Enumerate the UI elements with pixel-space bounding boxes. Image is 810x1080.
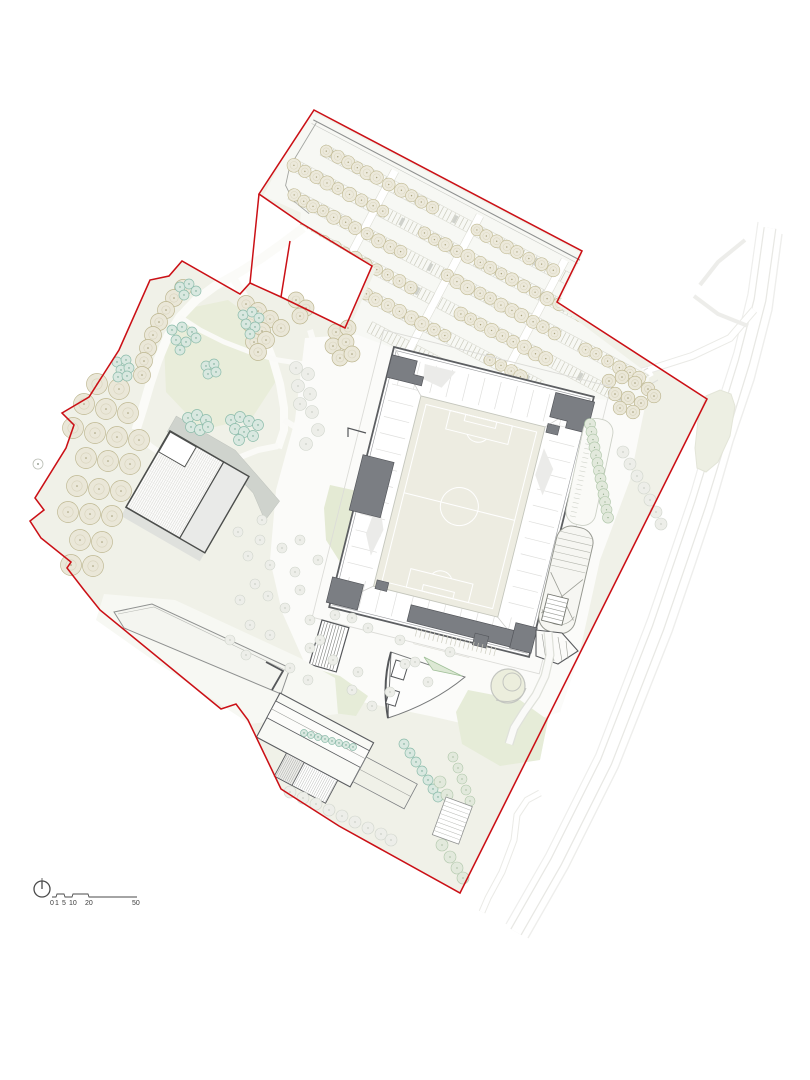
- svg-text:0: 0: [50, 900, 54, 907]
- svg-text:5: 5: [62, 900, 66, 907]
- svg-text:10: 10: [69, 900, 77, 907]
- svg-text:20: 20: [85, 900, 93, 907]
- svg-text:1: 1: [55, 900, 59, 907]
- svg-text:50: 50: [132, 900, 140, 907]
